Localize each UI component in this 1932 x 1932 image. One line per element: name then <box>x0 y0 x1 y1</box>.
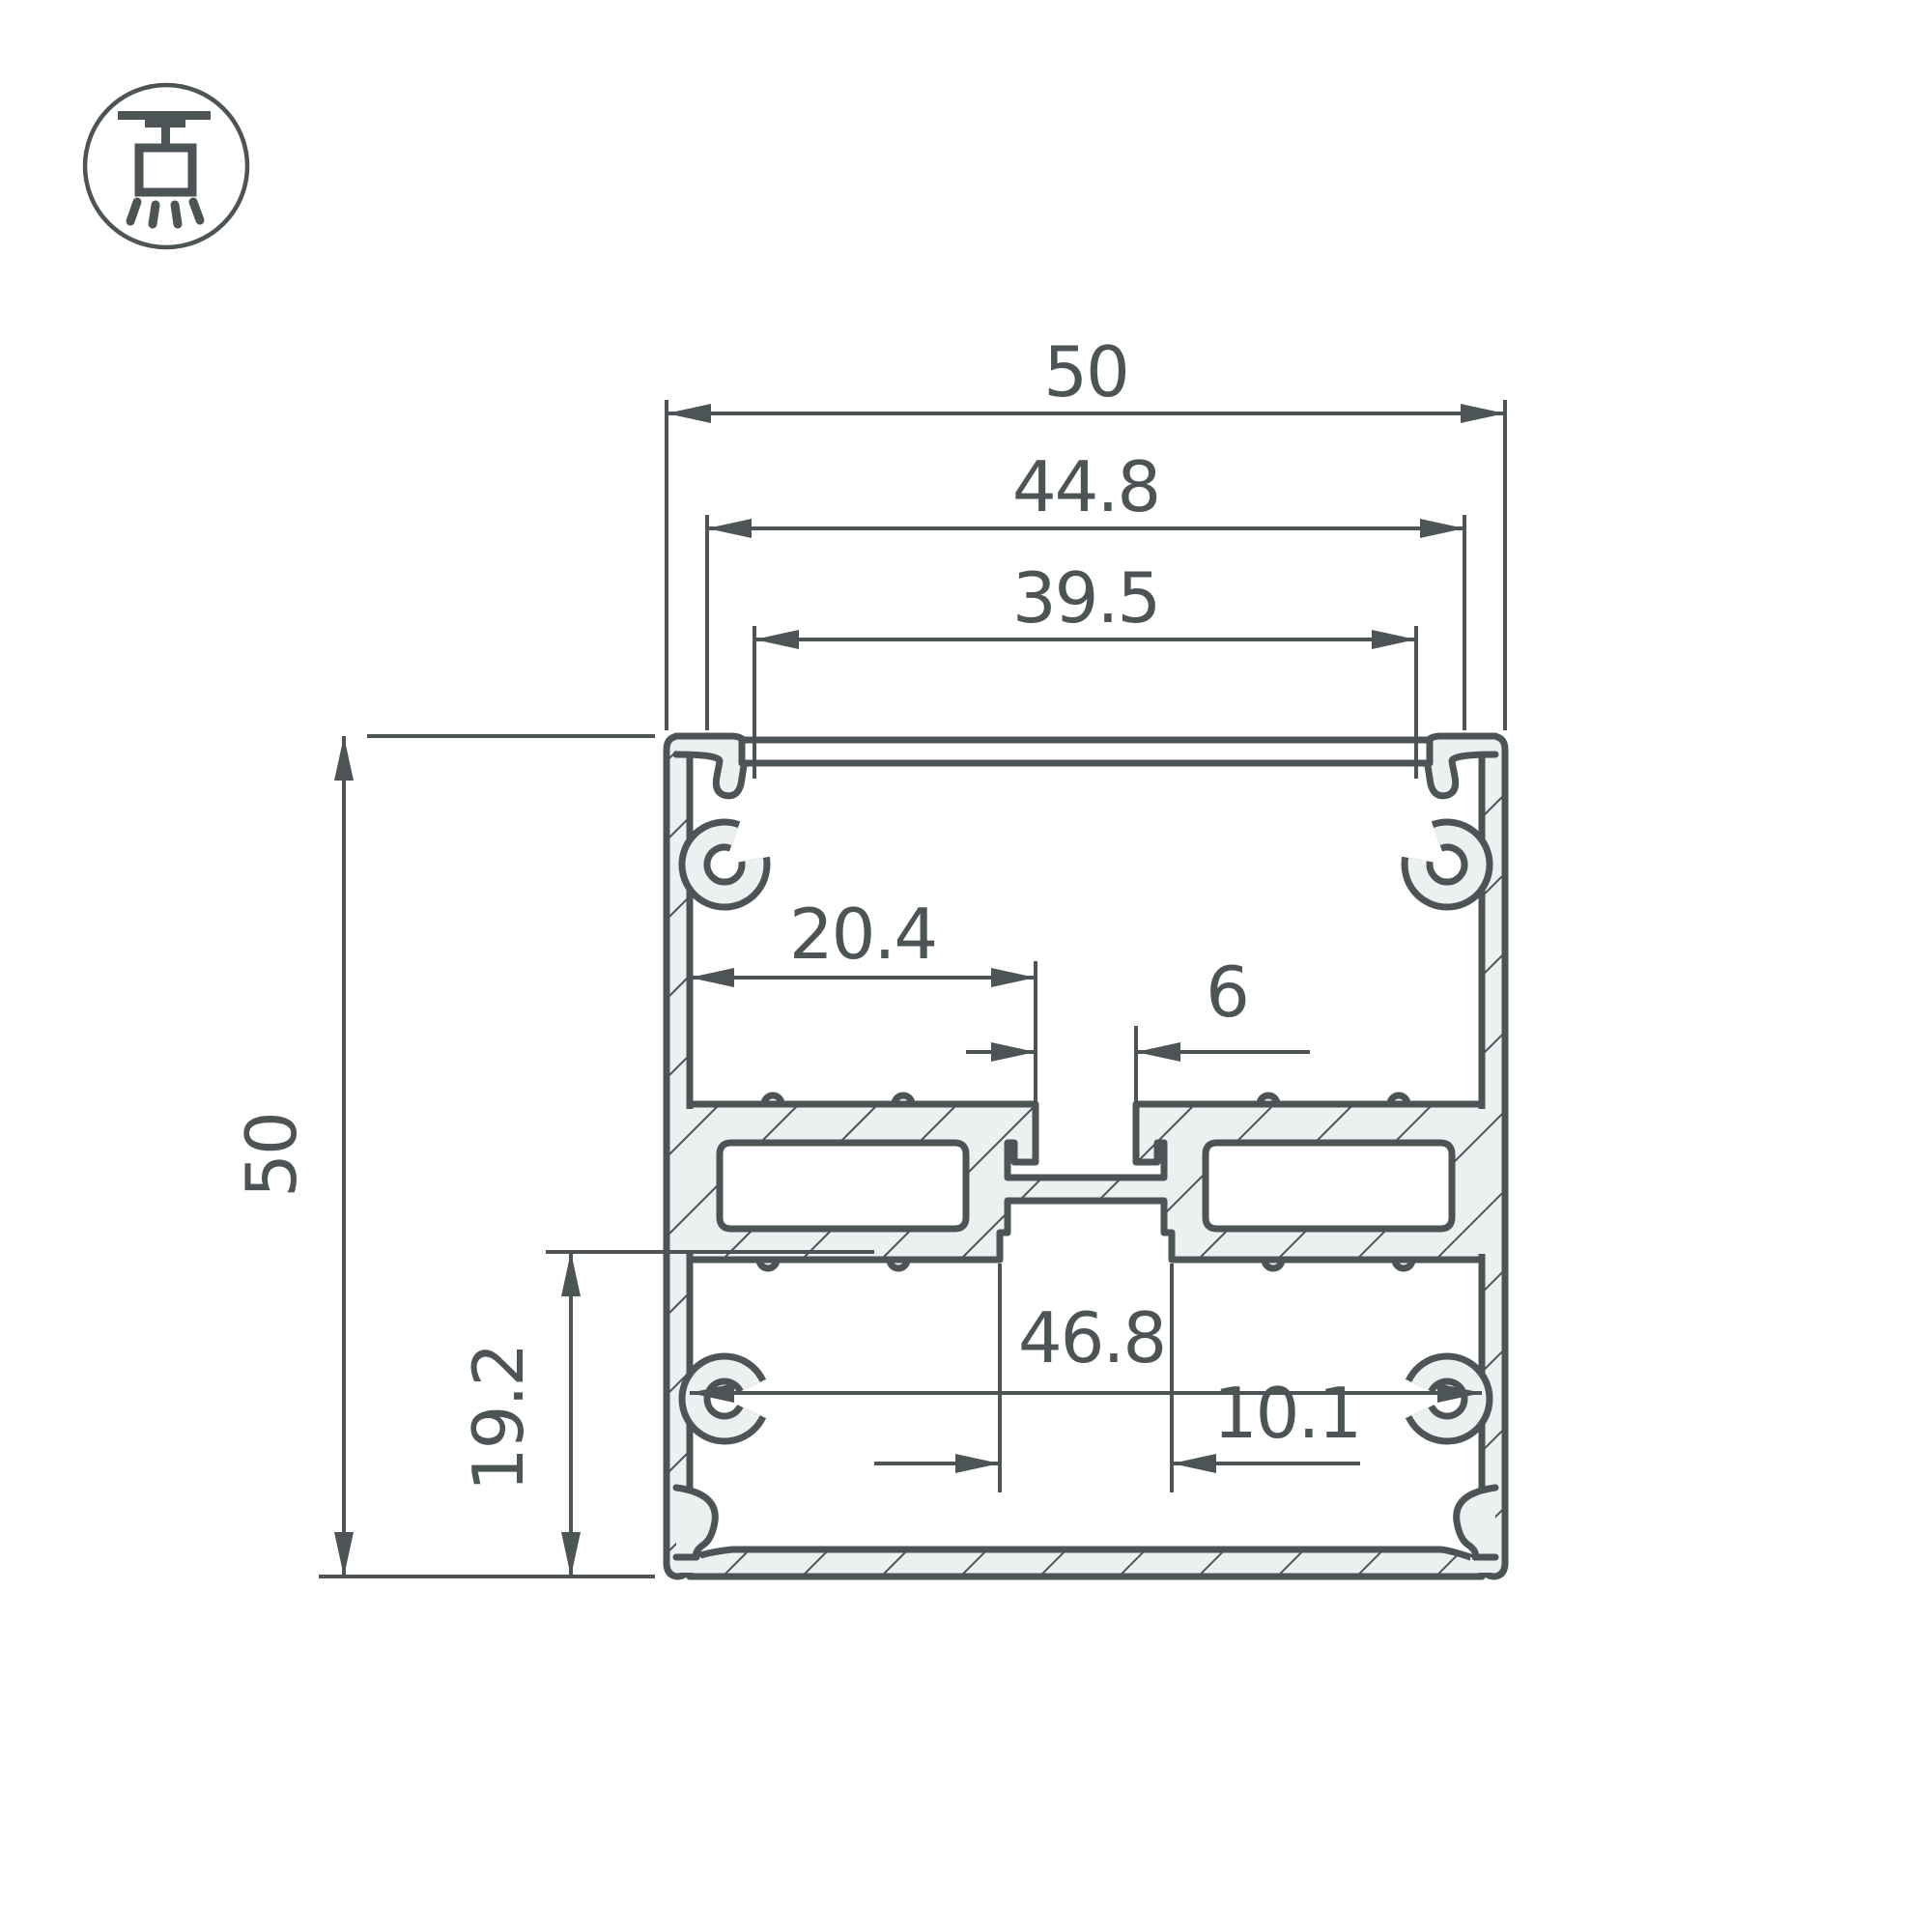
dim-shelf-width: 20.4 <box>690 894 1036 1101</box>
ceiling-pendant-light-icon <box>85 85 247 247</box>
dim-outer-height: 50 <box>231 736 655 1577</box>
dim-bottom-section-height-label: 19.2 <box>458 1345 539 1492</box>
dim-bottom-slot-width-label: 10.1 <box>1213 1373 1360 1454</box>
dim-shelf-width-label: 20.4 <box>789 894 936 975</box>
bottom-plate <box>690 1549 1482 1577</box>
dim-outer-width: 50 <box>667 331 1505 730</box>
profile-technical-drawing: 50 44.8 39.5 50 19.2 <box>0 0 1932 1932</box>
dim-flange-width-label: 44.8 <box>1012 446 1159 527</box>
profile-section <box>667 736 1505 1577</box>
dim-outer-height-label: 50 <box>231 1113 312 1198</box>
dim-inner-width-label: 46.8 <box>1018 1297 1165 1378</box>
middle-deck <box>690 1104 1482 1260</box>
drawing-page: 50 44.8 39.5 50 19.2 <box>0 0 1932 1932</box>
dim-top-slot-width-label: 6 <box>1206 952 1248 1033</box>
dim-inner-width: 46.8 <box>690 1297 1482 1403</box>
dim-outer-width-label: 50 <box>1043 331 1128 412</box>
diffuser-cover-plate <box>742 740 1430 763</box>
dim-groove-width-label: 39.5 <box>1012 557 1159 639</box>
